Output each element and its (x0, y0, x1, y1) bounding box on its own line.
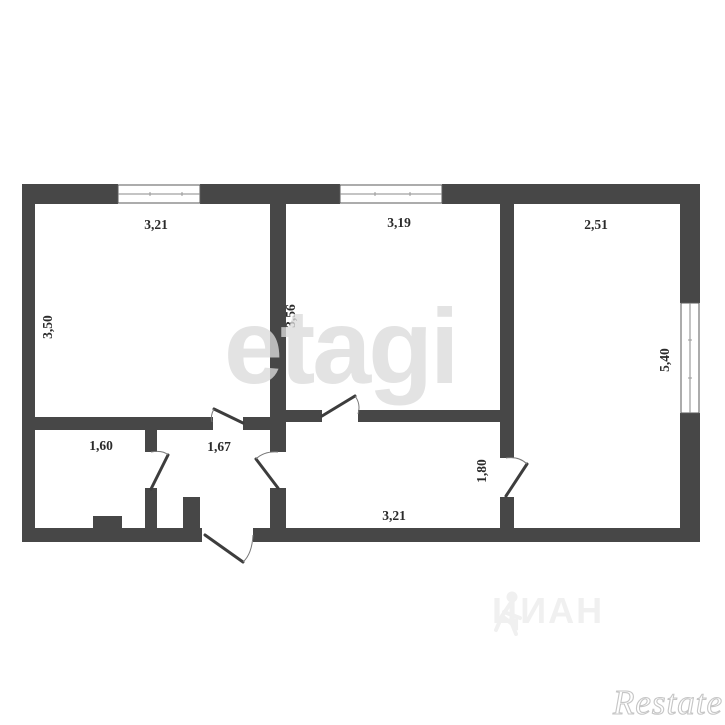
restate-watermark: Restate (613, 683, 723, 723)
wall-segment (680, 413, 700, 542)
walking-person-icon (492, 590, 526, 636)
door-leaf (151, 455, 168, 489)
wall-segment (35, 417, 213, 430)
door-leaf (205, 535, 243, 562)
door-swing-arc (151, 451, 168, 455)
wall-segment (22, 184, 118, 204)
floor-plan-image: 3,21 3,50 3,19 3,56 2,51 5,40 1,60 1,67 … (0, 0, 725, 725)
dimension-label-hallway: 1,67 (207, 439, 231, 454)
wall-segment (358, 410, 500, 422)
dimension-label-room160: 1,60 (89, 438, 113, 453)
window-top-middle (340, 185, 442, 203)
window-right (681, 303, 699, 413)
dimension-label-topleft-height: 3,50 (40, 315, 55, 339)
dimension-label-topleft-width: 3,21 (144, 217, 168, 232)
door-room160-hallway (151, 451, 168, 489)
door-hallway-corridor (256, 452, 278, 488)
wall-segment (22, 528, 202, 542)
door-leaf (214, 409, 243, 423)
door-leaf (506, 464, 527, 496)
door-swing-arc (243, 535, 253, 562)
cian-watermark: ЦИАН (492, 590, 604, 632)
door-swing-arc (256, 452, 278, 459)
dimension-label-middle-width: 3,19 (387, 215, 411, 230)
dimension-label-right-height: 5,40 (657, 348, 672, 372)
wall-segment (243, 417, 270, 430)
wall-stub (183, 497, 200, 528)
wall-segment (145, 430, 157, 452)
wall-segment (442, 184, 700, 204)
window-top-left (118, 185, 200, 203)
wall-segment (145, 488, 157, 528)
wall-segment (22, 184, 35, 542)
wall-segment (253, 528, 700, 542)
door-leaf (256, 459, 278, 488)
wall-segment (200, 184, 340, 204)
wall-segment (286, 410, 322, 422)
door-swing-arc (506, 458, 527, 464)
door-topleft-room (211, 409, 243, 423)
wall-segment (500, 204, 514, 458)
door-corridor-rightroom (506, 458, 527, 496)
wall-segment (680, 184, 700, 303)
wall-segment (270, 488, 286, 528)
dimension-label-corridor-width: 3,21 (382, 508, 406, 523)
wall-segment (500, 497, 514, 528)
etagi-watermark: etagi (224, 294, 456, 400)
dimension-label-right-width: 2,51 (584, 217, 608, 232)
dimension-label-corridor-doorway: 1,80 (474, 459, 489, 483)
duct-block (93, 516, 122, 528)
door-entrance (205, 535, 253, 562)
